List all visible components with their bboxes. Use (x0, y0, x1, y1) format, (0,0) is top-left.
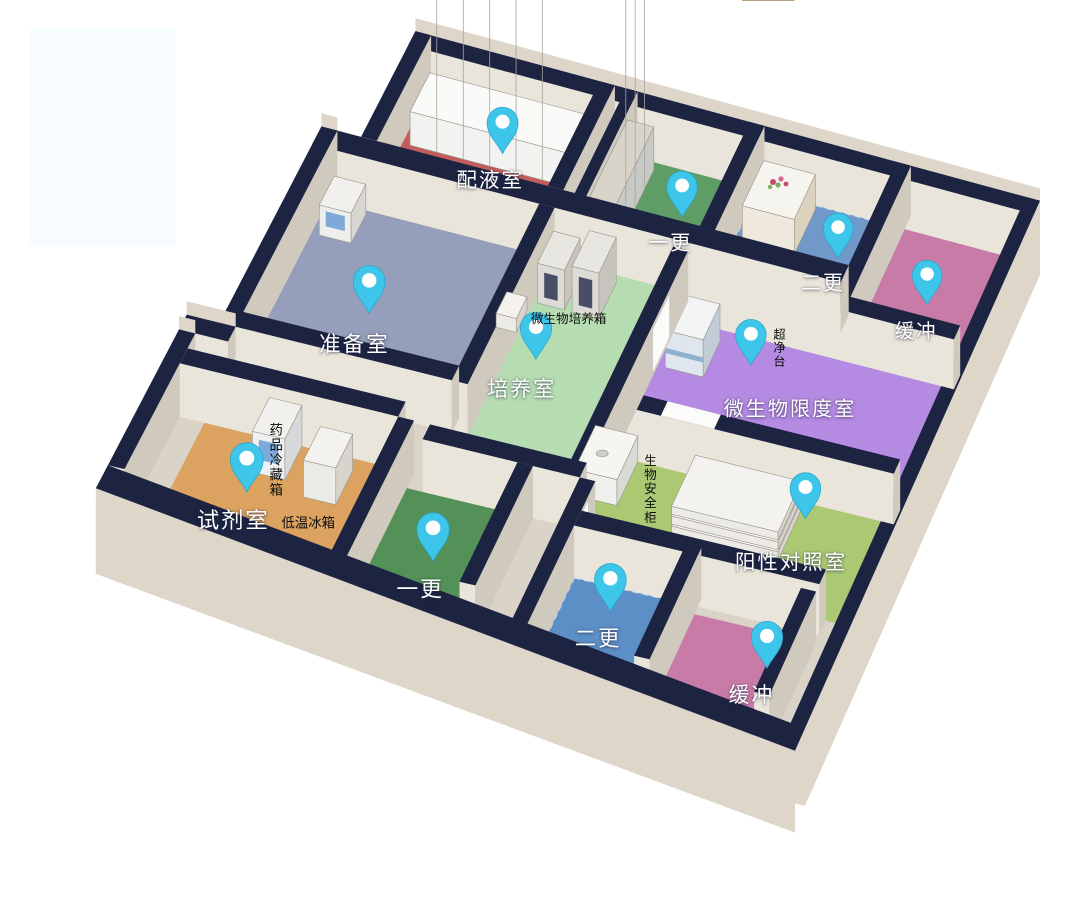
lab-floorplan-stage: 配液室准备室一更二更缓冲微生物限度室培养室试剂室一更二更阳性对照室缓冲微生物培养… (0, 0, 1068, 918)
floorplan-canvas (0, 0, 1068, 918)
